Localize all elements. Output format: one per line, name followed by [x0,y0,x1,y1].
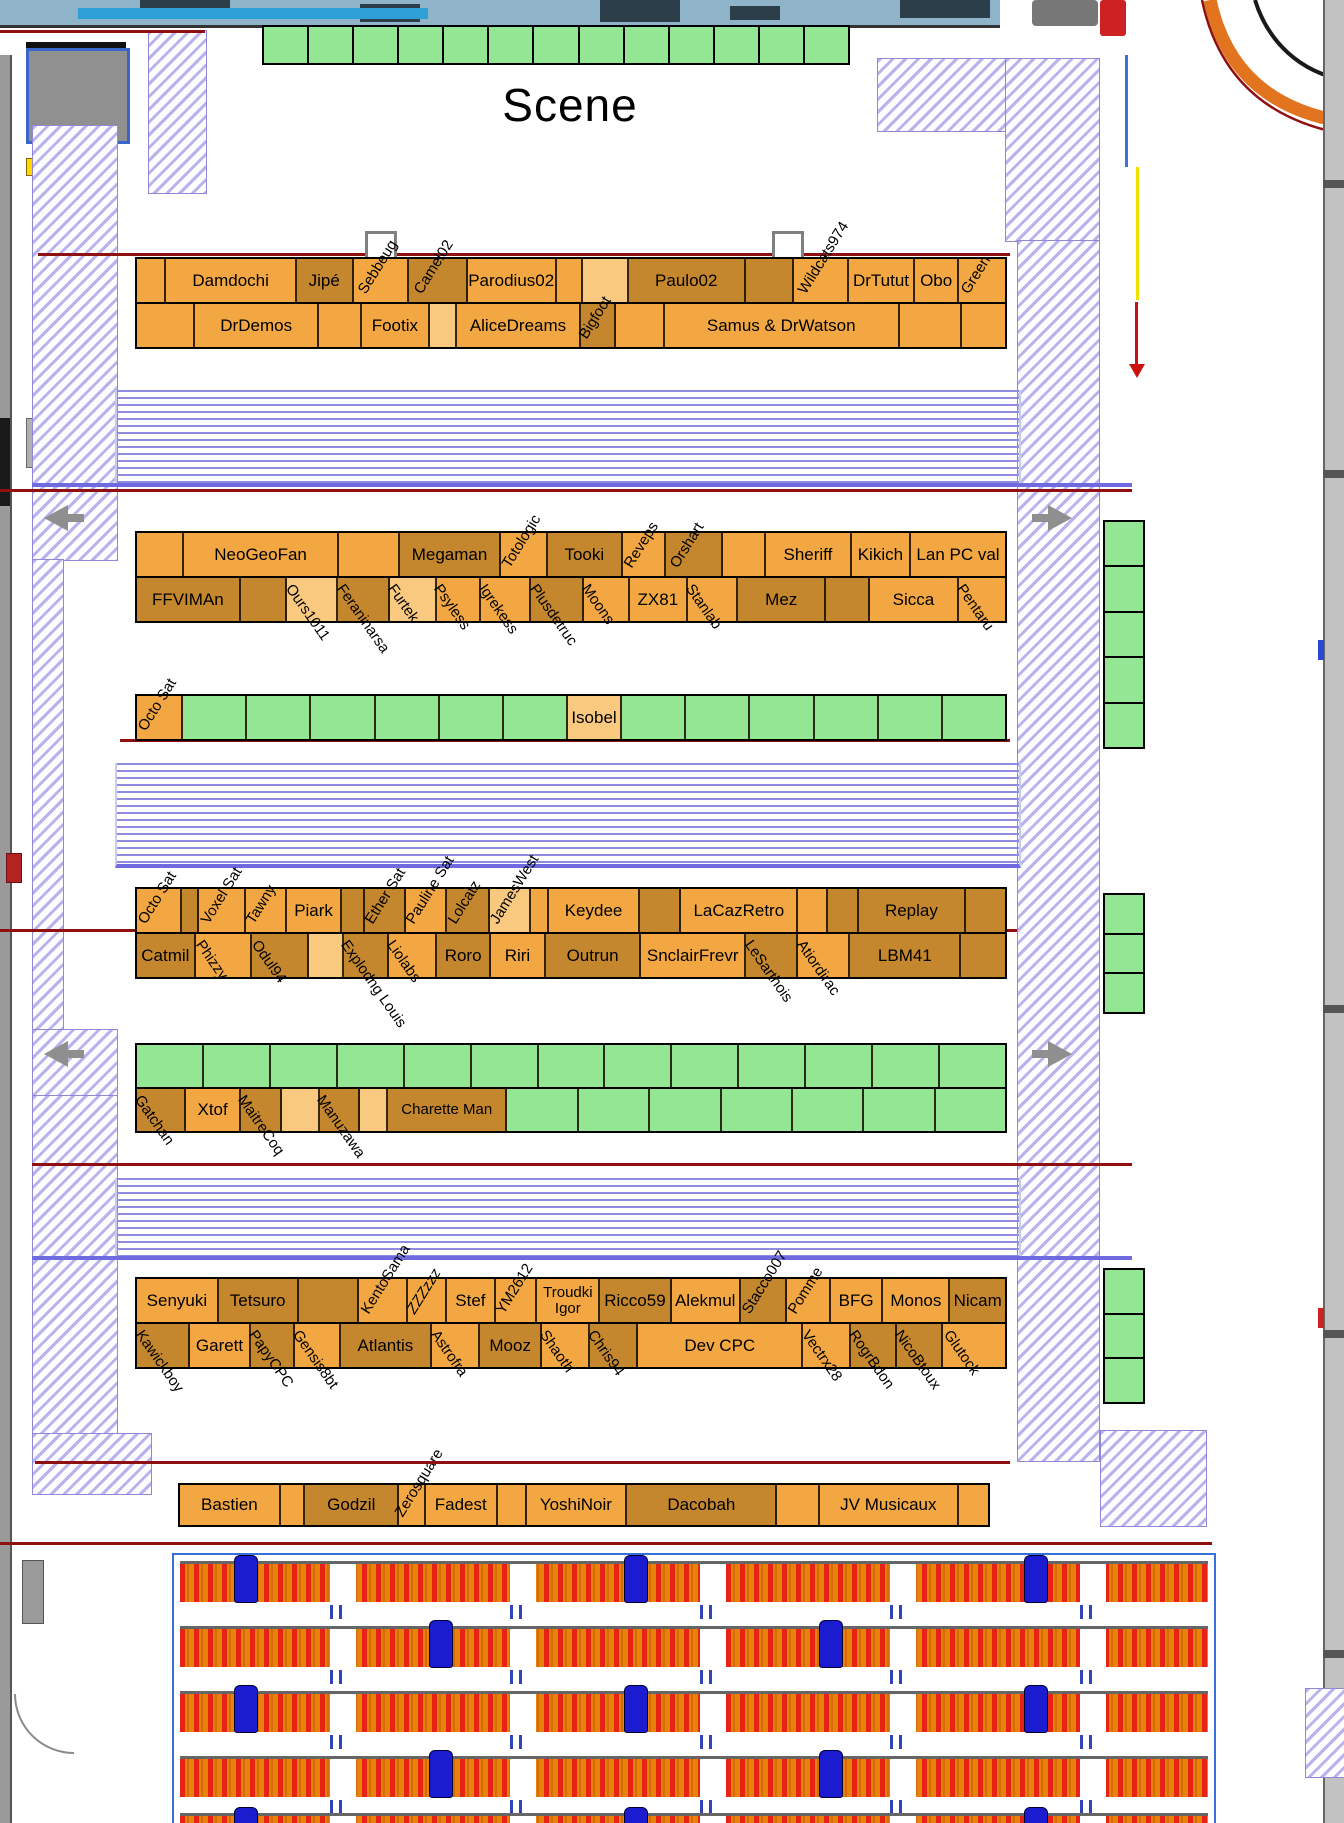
seat-cell [498,1485,527,1525]
free-table-cell [650,1089,721,1131]
free-table-cell [605,1045,672,1087]
aisle-tick [709,1735,712,1749]
seat-cell [723,533,766,576]
seat-label: Lolcatz [444,878,484,927]
seat-label: Glutock [940,1327,983,1378]
audience-seating-area [172,1553,1216,1823]
vehicle-icon [1032,0,1098,26]
audience-figure-icon [1024,1555,1048,1603]
seat-senyuki: Senyuki [137,1279,219,1322]
audience-figure-icon [1024,1685,1048,1733]
seat-wildcats974: Wildcats974 [794,259,849,302]
hatch-area [32,125,118,491]
seat-tawny: Tawny [246,889,287,932]
seat-label: LeSarthois [741,937,796,1005]
seat-label: Footix [372,317,418,334]
aisle-tick [330,1800,333,1814]
audience-figure-icon [429,1620,453,1668]
seat-lan-pc-val: Lan PC val [911,533,1005,576]
seat-octo-sat: Octo Sat [137,889,182,932]
free-table-cell [940,1045,1005,1087]
aisle-tick [1080,1605,1083,1619]
seat-label: Pentaru [953,581,997,634]
audience-aisle-gap [700,1759,726,1797]
seat-green: Green [959,259,1005,302]
seat-pomme: Pomme [787,1279,831,1322]
aisle-tick [1089,1670,1092,1684]
chair-rows-band [115,390,1021,487]
seat-kentosama: KentoSama [359,1279,407,1322]
seat-roro: Roro [437,934,491,977]
table-row: GatchanXtofMaitreCoqManuzawaCharette Man [135,1087,1007,1133]
seat-label: Shaoth [536,1327,577,1376]
audience-aisle-gap [700,1564,726,1602]
aisle-tick [899,1735,902,1749]
seat-cell [282,1089,320,1131]
aisle-tick [890,1735,893,1749]
seat-label: Orshart [667,520,708,571]
seat-dev-cpc: Dev CPC [638,1324,803,1367]
aisle-tick [510,1605,513,1619]
audience-aisle-gap [330,1629,356,1667]
aisle-tick [700,1735,703,1749]
green-row-1: Octo SatIsobel [135,694,1007,741]
seat-label: Feraninarsa [333,581,393,656]
seat-sheriff: Sheriff [766,533,852,576]
seat-camel02: Camel02 [409,259,468,302]
audience-seat-row [180,1561,1208,1602]
seat-cell [616,304,665,347]
seat-label: Psyless [430,581,474,633]
seat-label: Roro [445,947,482,964]
aisle-tick [1080,1670,1083,1684]
seat-dacobah: Dacobah [627,1485,777,1525]
seat-garett: Garett [190,1324,252,1367]
seat-label: NeoGeoFan [214,546,307,563]
seat-cell [828,889,859,932]
seat-label: Dev CPC [684,1337,755,1354]
seat-label: Damdochi [192,272,269,289]
stage-table-cell [444,27,489,63]
audience-seat-row [180,1626,1208,1667]
seat-label: Igrekess [475,581,521,637]
seat-cell [959,1485,988,1525]
seat-label: Sheriff [783,546,832,563]
aisle-tick [899,1670,902,1684]
seat-cell [309,934,344,977]
seat-label: Catmil [141,947,189,964]
audience-aisle-gap [700,1816,726,1823]
seat-cell [342,889,365,932]
seat-label: Samus & DrWatson [707,317,856,334]
audience-seat-row [180,1756,1208,1797]
seat-label: Troudki Igor [537,1285,598,1316]
red-arrow-down [1135,302,1138,364]
free-table-cell [672,1045,739,1087]
chair-rows-band [115,1178,1021,1260]
table-row: Octo SatIsobel [135,694,1007,741]
aisle-tick [510,1800,513,1814]
seat-damdochi: Damdochi [166,259,296,302]
seat-explodng-louis: Explodng Louis [344,934,390,977]
seat-label: DrDemos [220,317,292,334]
audience-aisle-gap [330,1564,356,1602]
audience-figure-icon [234,1807,258,1823]
seat-label: Gatchan [132,1092,178,1148]
free-table-cell [204,1045,271,1087]
seat-label: Ours1011 [282,581,333,644]
hatch-area [32,1095,118,1435]
seat-label: Pomme [784,1264,826,1317]
aisle-tick [1089,1800,1092,1814]
floor-plan: Scene DamdochiJipéSebbeugCamel02Parodius… [0,0,1344,1823]
seat-label: YM2612 [492,1261,536,1317]
hatch-area [1017,1165,1100,1462]
free-table-cell [864,1089,935,1131]
seat-cell [583,259,629,302]
audience-aisle-gap [890,1816,916,1823]
seat-ricco59: Ricco59 [600,1279,671,1322]
table-row: CatmilPhizzyOdul94Explodng LouisLiolabsR… [135,932,1007,979]
seat-megaman: Megaman [400,533,500,576]
stage-table-cell [354,27,399,63]
seat-label: Totologic [499,512,545,571]
free-table-cell [686,696,750,739]
audience-figure-icon [624,1685,648,1733]
seat-sebbeug: Sebbeug [354,259,409,302]
seat-label: Lan PC val [916,546,999,563]
seat-replay: Replay [859,889,966,932]
free-table-cell [1105,522,1143,567]
table-row: DrDemosFootixAliceDreamsBigfootSamus & D… [135,302,1007,349]
seat-cell [137,259,166,302]
free-table-cell [472,1045,539,1087]
seat-label: Tooki [564,546,604,563]
free-table-cell [806,1045,873,1087]
band-edge-line [32,1256,1132,1260]
seat-zzzzzz: ZZZzzz [408,1279,448,1322]
audience-figure-icon [234,1685,258,1733]
aisle-tick [519,1605,522,1619]
seat-chris94: Chris94 [590,1324,638,1367]
aisle-tick [330,1670,333,1684]
seat-nicobtoux: NicoBtoux [897,1324,943,1367]
seat-label: MaitreCoq [234,1092,288,1158]
audience-aisle-gap [1080,1629,1106,1667]
wall-right-joint [1323,470,1344,478]
seat-label: Megaman [412,546,488,563]
seat-label: Phizzy [192,937,231,983]
seat-furtek: Furtek [390,578,436,621]
seat-manuzawa: Manuzawa [320,1089,360,1131]
seat-papycpc: PapyCPC [251,1324,294,1367]
seat-label: Camel02 [410,237,456,297]
table-row: DamdochiJipéSebbeugCamel02Parodius02Paul… [135,257,1007,304]
free-table-cell [622,696,686,739]
seat-ffviman: FFVIMAn [137,578,241,621]
aisle-tick [1080,1800,1083,1814]
seat-xtof: Xtof [186,1089,241,1131]
aisle-tick [709,1605,712,1619]
seat-label: Liolabs [383,937,424,986]
seat-cell [137,533,184,576]
seat-fadest: Fadest [426,1485,498,1525]
direction-arrow-icon [1032,505,1072,531]
seat-rogrbdon: RogrBdon [851,1324,897,1367]
audience-aisle-gap [1080,1816,1106,1823]
blue-guide-line [1125,55,1128,167]
seat-riri: Riri [491,934,545,977]
aisle-tick [330,1735,333,1749]
wall-right-joint [1323,180,1344,188]
seat-label: ZZZzzz [404,1266,445,1317]
seat-lolcatz: Lolcatz [447,889,490,932]
stage-table-cell [399,27,444,63]
seat-label: Moons [578,581,618,628]
seat-liolabs: Liolabs [389,934,437,977]
audience-aisle-gap [890,1629,916,1667]
seat-cell [777,1485,819,1525]
seat-glutock: Glutock [943,1324,1005,1367]
stage-table-cell [715,27,760,63]
seat-label: ZX81 [638,591,679,608]
hatch-area [32,559,64,1031]
wall-right-red-mark [1318,1308,1324,1328]
seat-label: Charette Man [401,1102,492,1117]
seat-label: Sicca [893,591,935,608]
free-table-cell [1105,613,1143,658]
aisle-tick [709,1670,712,1684]
seat-label: Fadest [435,1496,487,1513]
red-guide-line [0,30,205,33]
stage-table-cell [760,27,805,63]
seat-mooz: Mooz [480,1324,542,1367]
free-table-cell [936,1089,1005,1131]
aisle-tick [519,1670,522,1684]
free-table-cell [1105,1359,1143,1402]
seat-cell [966,889,1005,932]
seat-plusdetruc: Plusdetruc [531,578,584,621]
red-guide-line [0,489,1132,492]
seat-catmil: Catmil [137,934,196,977]
seat-psyless: Psyless [437,578,481,621]
aisle-tick [1089,1605,1092,1619]
aisle-tick [519,1800,522,1814]
storage-box [22,1560,44,1624]
seat-pauline-sat: Pauline Sat [406,889,447,932]
audience-aisle-gap [330,1816,356,1823]
stage-table-cell [625,27,670,63]
stage-table-cell [805,27,848,63]
seat-jameswest: JamesWest [490,889,531,932]
audience-aisle-gap [510,1694,536,1732]
hatch-area [1305,1688,1344,1778]
row-4: SenyukiTetsuroKentoSamaZZZzzzStefYM2612T… [135,1277,1007,1369]
seat-mez: Mez [738,578,826,621]
seat-kawickboy: Kawickboy [137,1324,190,1367]
seat-lacazretro: LaCazRetro [681,889,798,932]
seat-troudki-igor: Troudki Igor [537,1279,600,1322]
seat-label: Stanlab [682,581,725,632]
aisle-tick [890,1605,893,1619]
seat-cell [746,259,794,302]
audience-figure-icon [819,1620,843,1668]
seat-parodius02: Parodius02 [468,259,557,302]
seat-keydee: Keydee [549,889,641,932]
row-1: DamdochiJipéSebbeugCamel02Parodius02Paul… [135,257,1007,349]
seat-label: Atiordirac [793,937,843,999]
seat-cell [241,578,287,621]
audience-aisle-gap [890,1759,916,1797]
hatch-area [877,58,1007,132]
free-table-cell [722,1089,793,1131]
seat-ours1011: Ours1011 [287,578,338,621]
stage-table-cell [264,27,309,63]
seat-zx81: ZX81 [630,578,687,621]
seat-label: Gensis8bt [289,1327,342,1392]
seat-godzil: Godzil [305,1485,399,1525]
free-table-cell [539,1045,606,1087]
free-table-cell [815,696,879,739]
door-arc [14,1694,74,1754]
free-table-cell [873,1045,940,1087]
free-table-cell [793,1089,864,1131]
row-3: Octo SatVoxel SatTawnyPiarkEther SatPaul… [135,887,1007,979]
seat-label: YoshiNoir [540,1496,612,1513]
stage-table-cell [489,27,534,63]
free-table-cell [879,696,943,739]
seat-label: Obo [920,272,952,289]
wall-right [1323,0,1344,1823]
seat-cell [137,304,195,347]
free-table-cell [1105,935,1143,975]
seat-label: PapyCPC [245,1327,297,1391]
aisle-tick [899,1605,902,1619]
free-table-cell [1105,974,1143,1012]
seat-totologic: Totologic [501,533,548,576]
audience-aisle-gap [330,1694,356,1732]
seat-feraninarsa: Feraninarsa [338,578,391,621]
aisle-tick [700,1800,703,1814]
free-table-cell [504,696,568,739]
stage-table-cell [580,27,625,63]
seat-tetsuro: Tetsuro [219,1279,299,1322]
audience-aisle-gap [510,1816,536,1823]
seat-label: Xtof [198,1101,228,1118]
seat-stanlab: Stanlab [688,578,739,621]
top-band-smudge [600,0,680,22]
aisle-tick [339,1735,342,1749]
top-band-smudge [730,6,780,20]
audience-figure-icon [624,1807,648,1823]
seat-label: Mooz [489,1337,531,1354]
aisle-tick [890,1800,893,1814]
seat-label: Reveps [620,519,661,571]
table-row: KawickboyGarettPapyCPCGensis8btAtlantisA… [135,1322,1007,1369]
row-5: BastienGodzilZerosquareFadestYoshiNoirDa… [178,1483,990,1527]
red-arrow-head [1129,364,1145,378]
seat-kikich: Kikich [852,533,911,576]
free-table-cell [1105,704,1143,747]
free-table-cell [1105,567,1143,612]
aisle-tick [700,1605,703,1619]
seat-label: AliceDreams [470,317,566,334]
seat-label: Furtek [384,581,422,626]
seat-label: Vectrx28 [798,1327,845,1385]
seat-cell [319,304,362,347]
seat-ym2612: YM2612 [496,1279,538,1322]
direction-arrow-icon [1032,1041,1072,1067]
seat-label: Octo Sat [135,868,180,927]
seat-label: SnclairFrevr [647,947,739,964]
seat-orshart: Orshart [666,533,723,576]
seat-obo: Obo [915,259,959,302]
free-table-cell [405,1045,472,1087]
seat-igrekess: Igrekess [481,578,532,621]
seat-label: Monos [890,1292,941,1309]
audience-aisle-gap [700,1629,726,1667]
top-band-smudge [900,0,990,18]
free-table-cell [579,1089,650,1131]
aisle-tick [510,1735,513,1749]
seat-label: Voxel Sat [198,864,246,927]
wall-left-dark-segment [0,418,10,506]
aisle-tick [709,1800,712,1814]
wall-right-joint [1323,1330,1344,1338]
hatch-area [148,30,207,194]
free-table-cell [1105,658,1143,703]
seat-bigfoot: Bigfoot [581,304,616,347]
seat-cell [531,889,549,932]
page-title: Scene [420,78,720,132]
seat-label: Dacobah [667,1496,735,1513]
table-row: FFVIMAnOurs1011FeraninarsaFurtekPsylessI… [135,576,1007,623]
seat-pentaru: Pentaru [959,578,1005,621]
seat-label: NicoBtoux [891,1327,944,1393]
seat-cell [281,1485,305,1525]
hatch-area [1100,1430,1207,1527]
seat-odul94: Odul94 [252,934,309,977]
seat-label: Keydee [565,902,623,919]
seat-samus-drwatson: Samus & DrWatson [665,304,900,347]
seat-label: Kikich [858,546,903,563]
seat-label: DrTutut [853,272,909,289]
audience-aisle-gap [890,1564,916,1602]
seat-shaoth: Shaoth [542,1324,590,1367]
seat-label: LBM41 [878,947,932,964]
free-table-cell [137,1045,204,1087]
pillar-notch [772,231,804,260]
seat-label: Replay [885,902,938,919]
seat-cell [640,889,681,932]
seat-moons: Moons [584,578,630,621]
aisle-tick [339,1605,342,1619]
free-table-cell [440,696,504,739]
top-photo-band [0,0,1000,28]
red-guide-line [35,1461,1010,1464]
seat-label: Jipé [309,272,340,289]
row-2: NeoGeoFanMegamanTotologicTookiRevepsOrsh… [135,531,1007,623]
seat-outrun: Outrun [546,934,642,977]
aisle-tick [899,1800,902,1814]
seat-cell [299,1279,360,1322]
seat-sicca: Sicca [870,578,958,621]
seat-cell [826,578,870,621]
audience-figure-icon [1024,1807,1048,1823]
audience-aisle-gap [510,1629,536,1667]
seat-alekmul: Alekmul [672,1279,741,1322]
red-marker [1100,0,1126,36]
